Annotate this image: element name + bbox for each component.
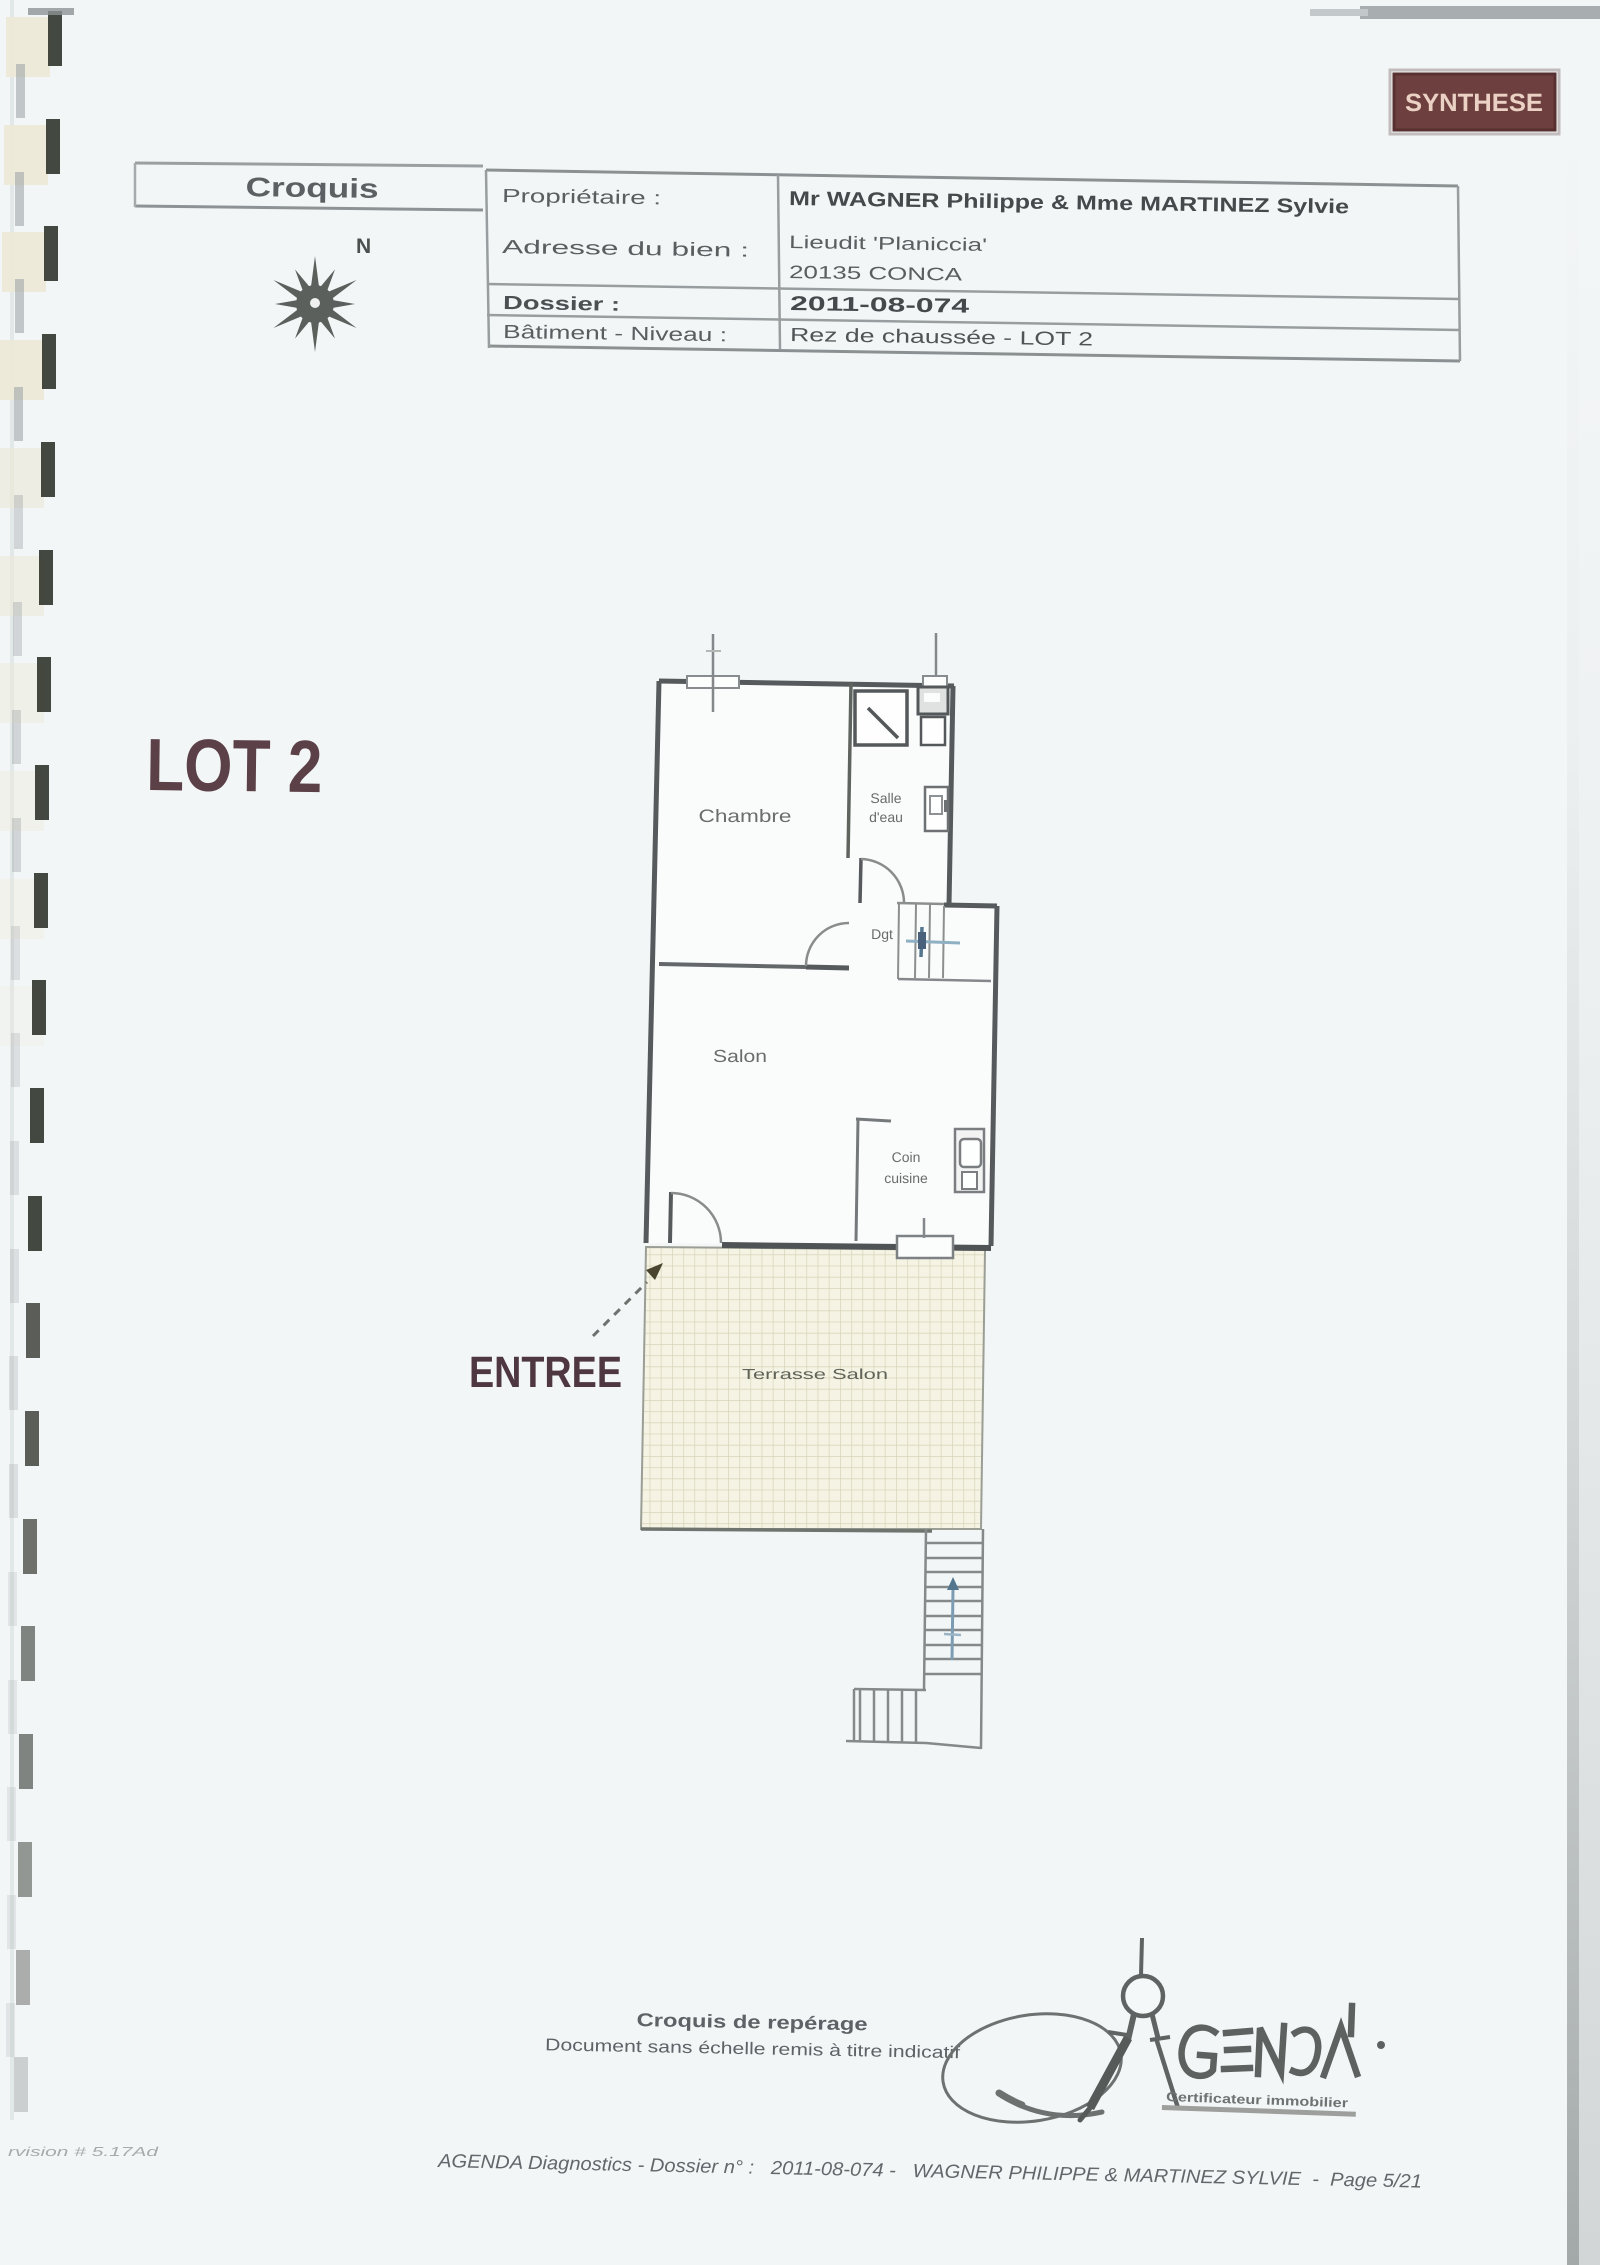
svg-text:cuisine: cuisine [884,1170,928,1186]
svg-text:Salon: Salon [713,1046,767,1066]
svg-text:Adresse du bien :: Adresse du bien : [502,237,749,262]
svg-text:Coin: Coin [892,1149,921,1165]
svg-text:Bâtiment - Niveau :: Bâtiment - Niveau : [503,322,727,346]
svg-text:ENTREE: ENTREE [469,1348,622,1397]
svg-text:2011-08-074: 2011-08-074 [790,293,971,318]
svg-text:Lieudit 'Planiccia': Lieudit 'Planiccia' [789,232,987,255]
svg-text:Dossier :: Dossier : [503,293,620,316]
svg-text:N: N [356,235,371,258]
svg-text:rvision # 5.17Ad: rvision # 5.17Ad [8,2144,159,2159]
svg-text:Dgt: Dgt [871,926,893,942]
svg-text:Rez de chaussée - LOT 2: Rez de chaussée - LOT 2 [790,325,1093,350]
svg-text:Propriétaire :: Propriétaire : [502,186,661,209]
svg-text:Croquis de repérage: Croquis de repérage [636,2009,867,2034]
svg-text:LOT 2: LOT 2 [146,723,323,808]
svg-text:SYNTHESE: SYNTHESE [1405,89,1543,117]
svg-text:Salle: Salle [870,790,901,806]
svg-text:Croquis: Croquis [245,172,378,204]
svg-text:Chambre: Chambre [699,806,792,826]
svg-text:Terrasse Salon: Terrasse Salon [742,1367,888,1383]
svg-text:d'eau: d'eau [869,809,903,825]
svg-text:20135 CONCA: 20135 CONCA [789,262,962,285]
